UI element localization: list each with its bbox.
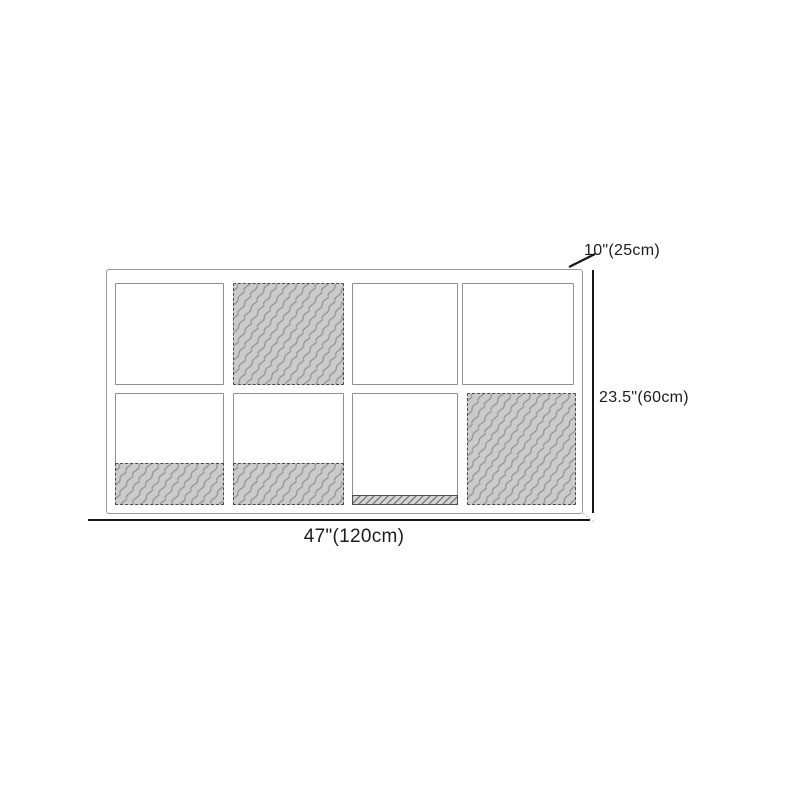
cube-cell-r1c4 <box>462 283 574 385</box>
cube-cell-r1c3 <box>352 283 458 385</box>
cell-bottom-texture <box>233 463 344 505</box>
cube-cell-r2c4 <box>467 393 576 505</box>
depth-label: 10"(25cm) <box>584 242 660 260</box>
cube-cell-r2c1 <box>115 393 224 505</box>
cube-cell-r1c1 <box>115 283 224 385</box>
cell-bottom-strip <box>352 495 458 505</box>
width-dimension-line <box>88 519 590 521</box>
height-dimension-line <box>592 270 594 513</box>
cell-bottom-texture <box>115 463 224 505</box>
dimension-diagram: 10"(25cm) 23.5"(60cm) 47"(120cm) <box>0 0 800 800</box>
cube-cell-r1c2 <box>233 283 344 385</box>
cube-cell-r2c2 <box>233 393 344 505</box>
cube-cell-r2c3 <box>352 393 458 505</box>
height-label: 23.5"(60cm) <box>599 389 689 407</box>
corner-dash-connector <box>580 510 600 528</box>
width-label: 47"(120cm) <box>204 526 504 548</box>
